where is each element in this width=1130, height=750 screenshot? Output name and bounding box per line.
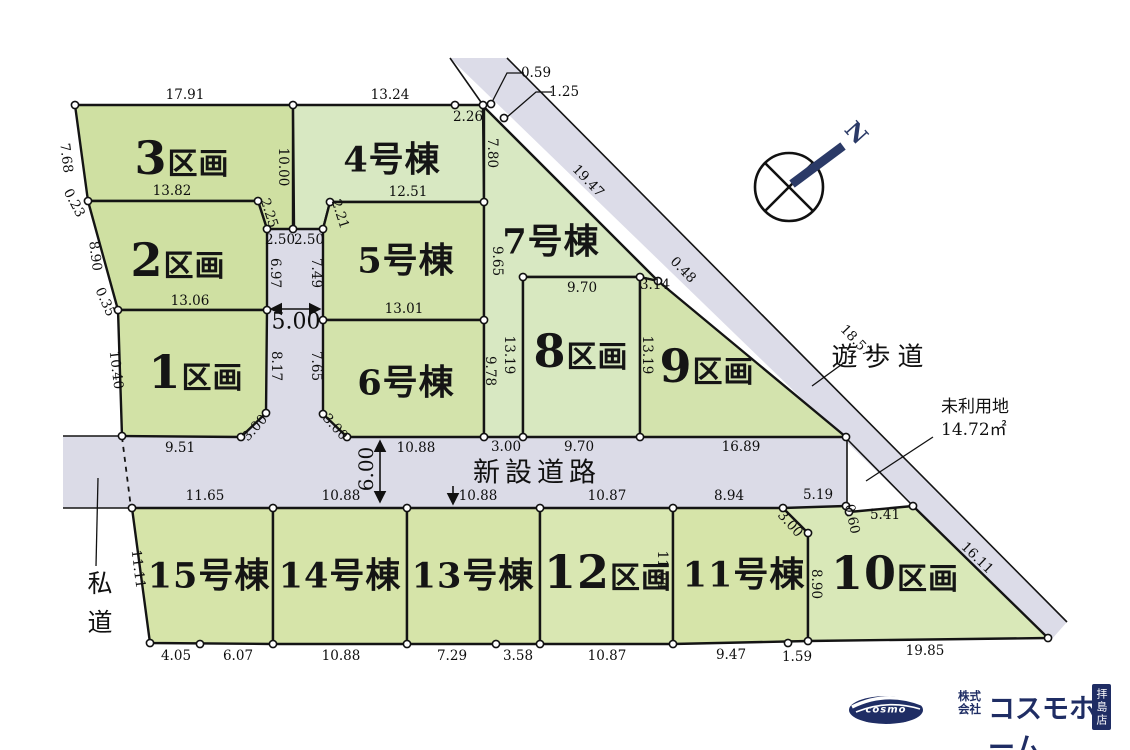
lot-1-shape: [118, 310, 267, 437]
boundary-node: [319, 225, 326, 232]
boundary-node: [480, 316, 487, 323]
boundary-node: [636, 433, 643, 440]
boundary-node: [492, 640, 499, 647]
north-pointer: [792, 146, 843, 184]
boundary-node: [500, 114, 507, 121]
boundary-node: [269, 640, 276, 647]
boundary-node: [536, 640, 543, 647]
boundary-node: [146, 639, 153, 646]
boundary-node: [804, 529, 811, 536]
lot-6-shape: [323, 320, 484, 437]
lot-5-shape: [323, 202, 484, 320]
boundary-node: [319, 316, 326, 323]
boundary-node: [263, 225, 270, 232]
lot-11-shape: [673, 508, 808, 644]
boundary-node: [319, 410, 326, 417]
boundary-node: [784, 639, 791, 646]
boundary-node: [669, 504, 676, 511]
boundary-node: [654, 277, 661, 284]
boundary-node: [237, 433, 244, 440]
boundary-node: [343, 433, 350, 440]
boundary-node: [636, 273, 643, 280]
boundary-node: [403, 640, 410, 647]
boundary-node: [845, 508, 852, 515]
boundary-node: [326, 198, 333, 205]
boundary-node: [519, 433, 526, 440]
boundary-node: [289, 101, 296, 108]
logo-graphics: [849, 696, 923, 724]
lots-group: [75, 105, 1048, 644]
boundary-node: [118, 432, 125, 439]
boundary-node: [128, 504, 135, 511]
boundary-node: [196, 640, 203, 647]
boundary-node: [263, 306, 270, 313]
boundary-node: [71, 101, 78, 108]
boundary-node: [536, 504, 543, 511]
plan-geometry: [0, 0, 1130, 750]
boundary-node: [779, 504, 786, 511]
lot-13-shape: [407, 508, 540, 644]
boundary-node: [480, 433, 487, 440]
lot-12-shape: [540, 508, 673, 644]
boundary-node: [842, 433, 849, 440]
boundary-node: [1044, 634, 1051, 641]
boundary-node: [289, 225, 296, 232]
lot-2-shape: [88, 201, 267, 310]
boundary-node: [480, 198, 487, 205]
boundary-node: [804, 637, 811, 644]
boundary-node: [479, 101, 486, 108]
boundary-node: [451, 101, 458, 108]
north-arrow: [755, 146, 843, 221]
boundary-node: [909, 502, 916, 509]
boundary-node: [254, 197, 261, 204]
boundary-node: [519, 273, 526, 280]
lot-8-shape: [523, 277, 640, 437]
new-road-surface: [63, 436, 849, 512]
boundary-node: [262, 409, 269, 416]
boundary-node: [403, 504, 410, 511]
lot-15-shape: [132, 508, 273, 644]
lot-14-shape: [273, 508, 407, 644]
boundary-node: [669, 640, 676, 647]
boundary-node: [269, 504, 276, 511]
lot-plan-diagram: 新設道路 遊歩道 私道 未利用地 14.72㎡ N cosmo 株式 会社 コス…: [0, 0, 1130, 750]
boundary-node: [487, 100, 494, 107]
boundary-node: [114, 306, 121, 313]
boundary-node: [84, 197, 91, 204]
